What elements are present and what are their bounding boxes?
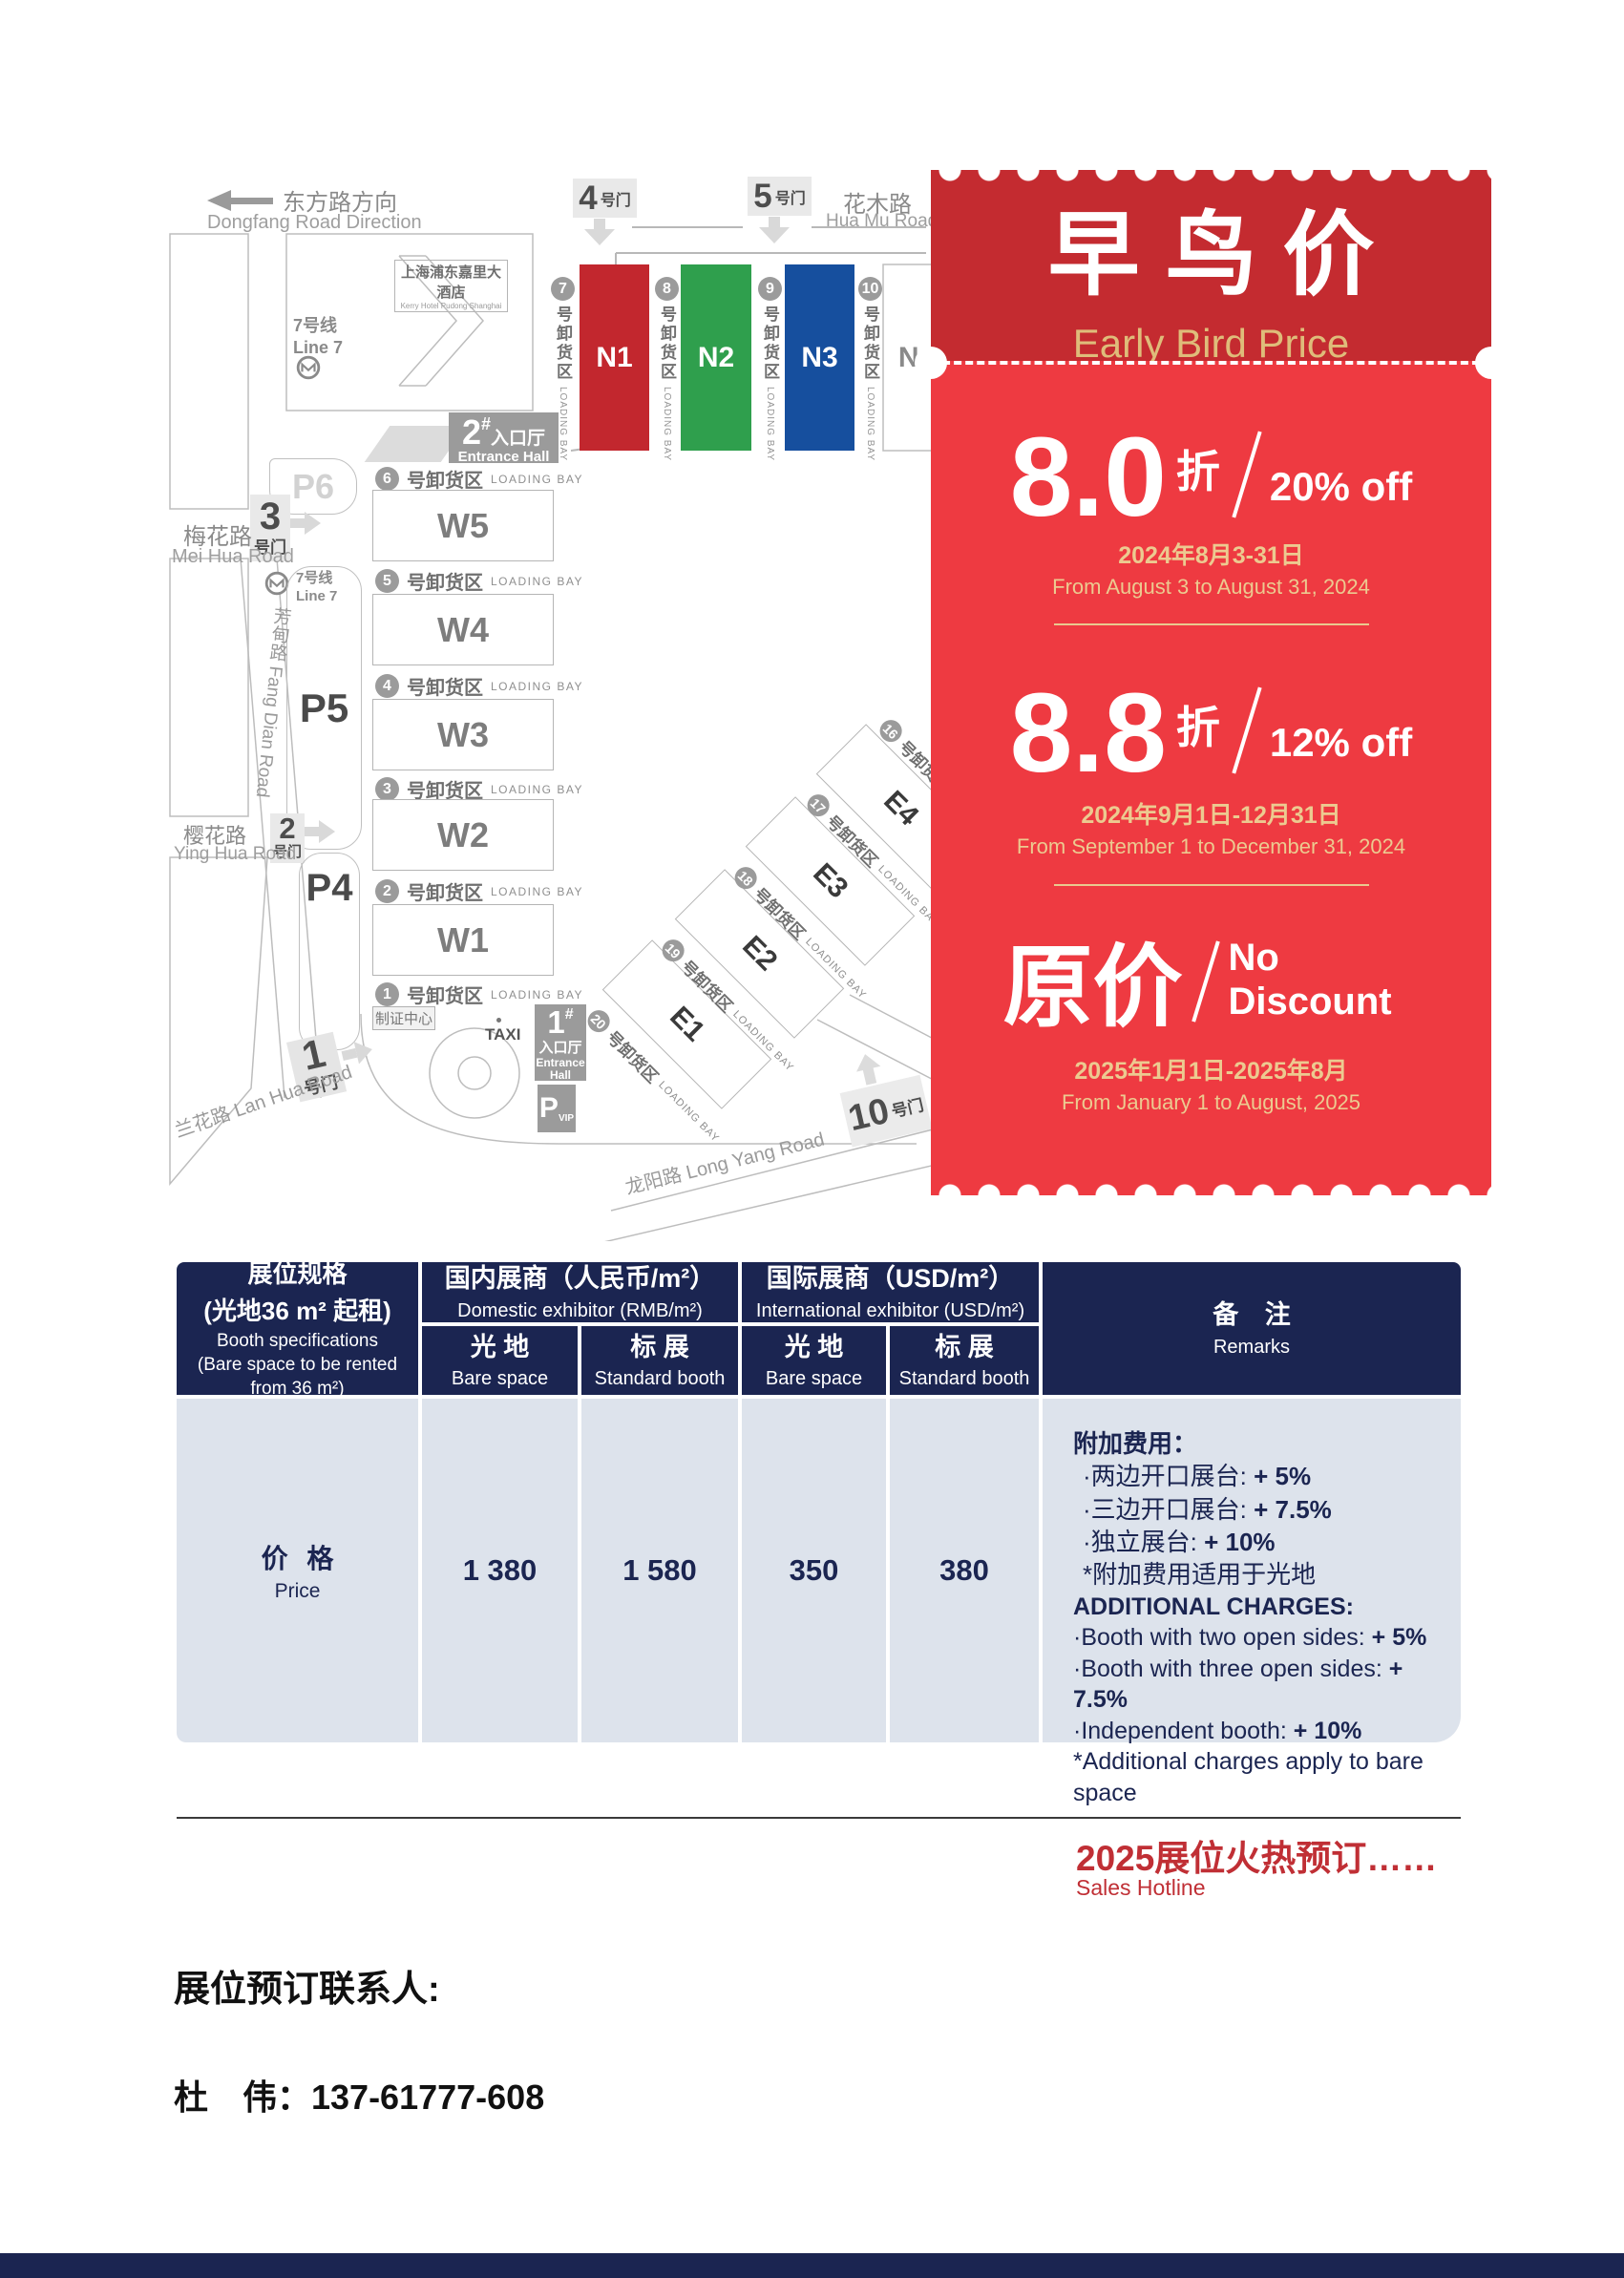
gate-2-arrow-icon <box>305 827 319 836</box>
sub-domestic-bare: 光 地 Bare space <box>422 1326 578 1395</box>
hall-n1: N1 <box>580 264 649 451</box>
entrance-hall-2: 2#入口厅 Entrance Hall <box>449 412 559 463</box>
price-table: 展位规格 (光地36 m² 起租) Booth specifications (… <box>177 1262 1461 1742</box>
footer-divider <box>177 1817 1461 1819</box>
slash-divider <box>1232 686 1261 773</box>
loading-bay-6: 6 号卸货区 LOADING BAY <box>375 465 583 493</box>
tier-3: 原价 No Discount <box>931 936 1491 1025</box>
loading-bay-4: 4 号卸货区 LOADING BAY <box>375 672 583 700</box>
value-international-standard: 380 <box>890 1399 1039 1742</box>
footer-bar <box>0 2253 1624 2278</box>
metro-line7-top: 7号线 Line 7 <box>293 315 343 360</box>
direction-arrow-icon <box>207 190 231 211</box>
parking-p4: P4 <box>299 853 360 1050</box>
early-bird-ticket: 早鸟价 Early Bird Price 8.0 折 20% off 2024年… <box>931 170 1491 1195</box>
hall-w5: W5 <box>372 490 554 561</box>
sub-international-standard: 标 展 Standard booth <box>890 1326 1039 1395</box>
gate-5: 5号门 <box>748 177 812 216</box>
contact-label: 展位预订联系人: <box>174 1959 440 2012</box>
taxi-dot <box>496 1018 501 1023</box>
tier-3-dates: 2025年1月1日-2025年8月 From January 1 to Augu… <box>931 1052 1491 1115</box>
value-domestic-bare: 1 380 <box>422 1399 578 1742</box>
parking-p5: P5 <box>286 566 362 850</box>
ticket-notch-right <box>1475 347 1508 379</box>
ticket-title-zh: 早鸟价 <box>931 210 1491 302</box>
sub-domestic-standard: 标 展 Standard booth <box>581 1326 738 1395</box>
tier-1-dates: 2024年8月3-31日 From August 3 to August 31,… <box>931 537 1491 600</box>
value-international-bare: 350 <box>742 1399 886 1742</box>
road-meihua-en: Mei Hua Road <box>172 546 294 568</box>
taxi-label: TAXI <box>485 1025 520 1044</box>
contact-phone: 杜 伟：137-61777-608 <box>174 2070 544 2120</box>
hall-w4: W4 <box>372 594 554 665</box>
tier-1: 8.0 折 20% off <box>931 430 1491 521</box>
badge-center: 制证中心 <box>372 1006 435 1030</box>
price-row-label: 价 格 Price <box>177 1399 418 1742</box>
col-remarks-header: 备 注 Remarks <box>1043 1262 1461 1395</box>
gold-divider <box>1054 623 1369 625</box>
slash-divider <box>1192 940 1220 1022</box>
group-domestic-header: 国内展商（人民币/m²） Domestic exhibitor (RMB/m²) <box>422 1262 738 1322</box>
ticket-scallop-top <box>931 170 1491 192</box>
gold-divider <box>1054 884 1369 886</box>
gate-4: 4号门 <box>573 179 637 218</box>
loading-bay-10: 10 号卸货区 LOADING BAY <box>858 277 882 461</box>
sub-international-bare: 光 地 Bare space <box>742 1326 886 1395</box>
hall-w2: W2 <box>372 799 554 871</box>
loading-bay-8: 8 号卸货区 LOADING BAY <box>655 277 679 461</box>
loading-bay-9: 9 号卸货区 LOADING BAY <box>758 277 782 461</box>
slash-divider <box>1232 431 1261 517</box>
remarks-content: 附加费用： ·两边开口展台: + 5% ·三边开口展台: + 7.5% ·独立展… <box>1043 1399 1461 1742</box>
hotline-subtitle: Sales Hotline <box>1076 1875 1206 1901</box>
hall-n2: N2 <box>681 264 751 451</box>
col-spec-header: 展位规格 (光地36 m² 起租) Booth specifications (… <box>177 1262 418 1395</box>
hall-w1: W1 <box>372 904 554 976</box>
road-yinghua-en: Ying Hua Road <box>174 844 296 865</box>
ticket-title-en: Early Bird Price <box>931 321 1491 367</box>
parking-vip: PVIP <box>538 1085 576 1132</box>
hall-n3: N3 <box>785 264 854 451</box>
ticket-scallop-bottom <box>931 1173 1491 1195</box>
flyer-page: 东方路方向 Dongfang Road Direction 4号门 5号门 花木… <box>0 0 1624 2278</box>
ticket-notch-left <box>915 347 947 379</box>
gate-3-arrow-icon <box>290 518 305 528</box>
tier-2: 8.8 折 12% off <box>931 686 1491 777</box>
road-huamu-en: Hua Mu Road <box>826 211 938 232</box>
hall-w3: W3 <box>372 699 554 770</box>
metro-logo-icon <box>296 355 321 380</box>
tier-2-dates: 2024年9月1日-12月31日 From September 1 to Dec… <box>931 796 1491 859</box>
loading-bay-2: 2 号卸货区 LOADING BAY <box>375 877 583 905</box>
road-dongfang-en: Dongfang Road Direction <box>207 212 422 234</box>
kerry-hotel-label: 上海浦东嘉里大酒店 Kerry Hotel Pudong Shanghai <box>394 260 508 312</box>
value-domestic-standard: 1 580 <box>581 1399 738 1742</box>
group-international-header: 国际展商（USD/m²） International exhibitor (US… <box>742 1262 1039 1322</box>
entrance-hall-1: 1# 入口厅 Entrance Hall <box>535 1004 586 1081</box>
hotline-title: 2025展位火热预订…… <box>1076 1829 1437 1881</box>
direction-arrow-bar <box>229 198 273 204</box>
loading-bay-5: 5 号卸货区 LOADING BAY <box>375 567 583 595</box>
ticket-top-section: 早鸟价 Early Bird Price <box>931 170 1491 365</box>
